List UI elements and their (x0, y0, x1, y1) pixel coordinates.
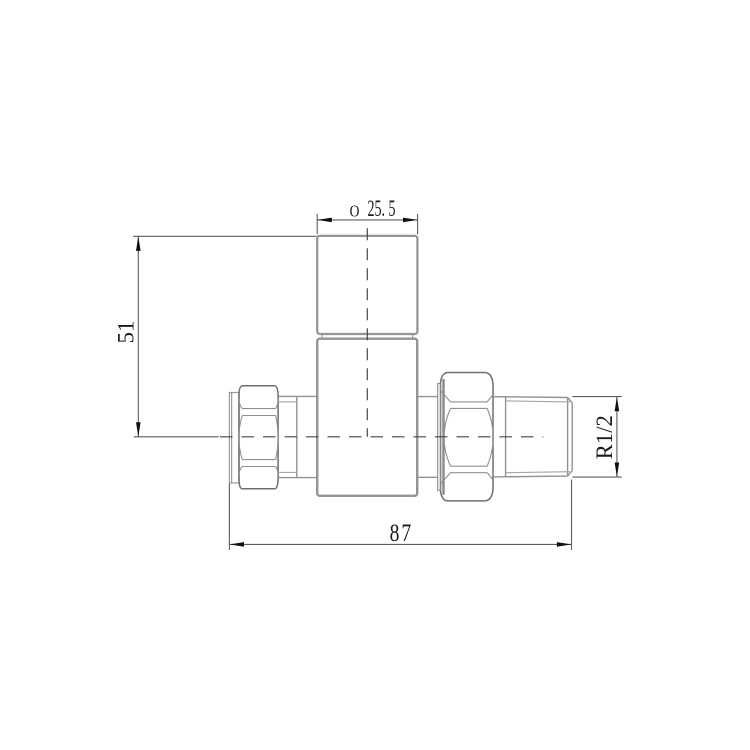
svg-text:7: 7 (401, 518, 411, 547)
svg-text:O: O (350, 201, 360, 220)
svg-text:25. 5: 25. 5 (368, 196, 396, 221)
svg-text:R1/2: R1/2 (592, 415, 617, 459)
svg-text:51: 51 (114, 321, 139, 344)
svg-text:8: 8 (390, 518, 400, 547)
